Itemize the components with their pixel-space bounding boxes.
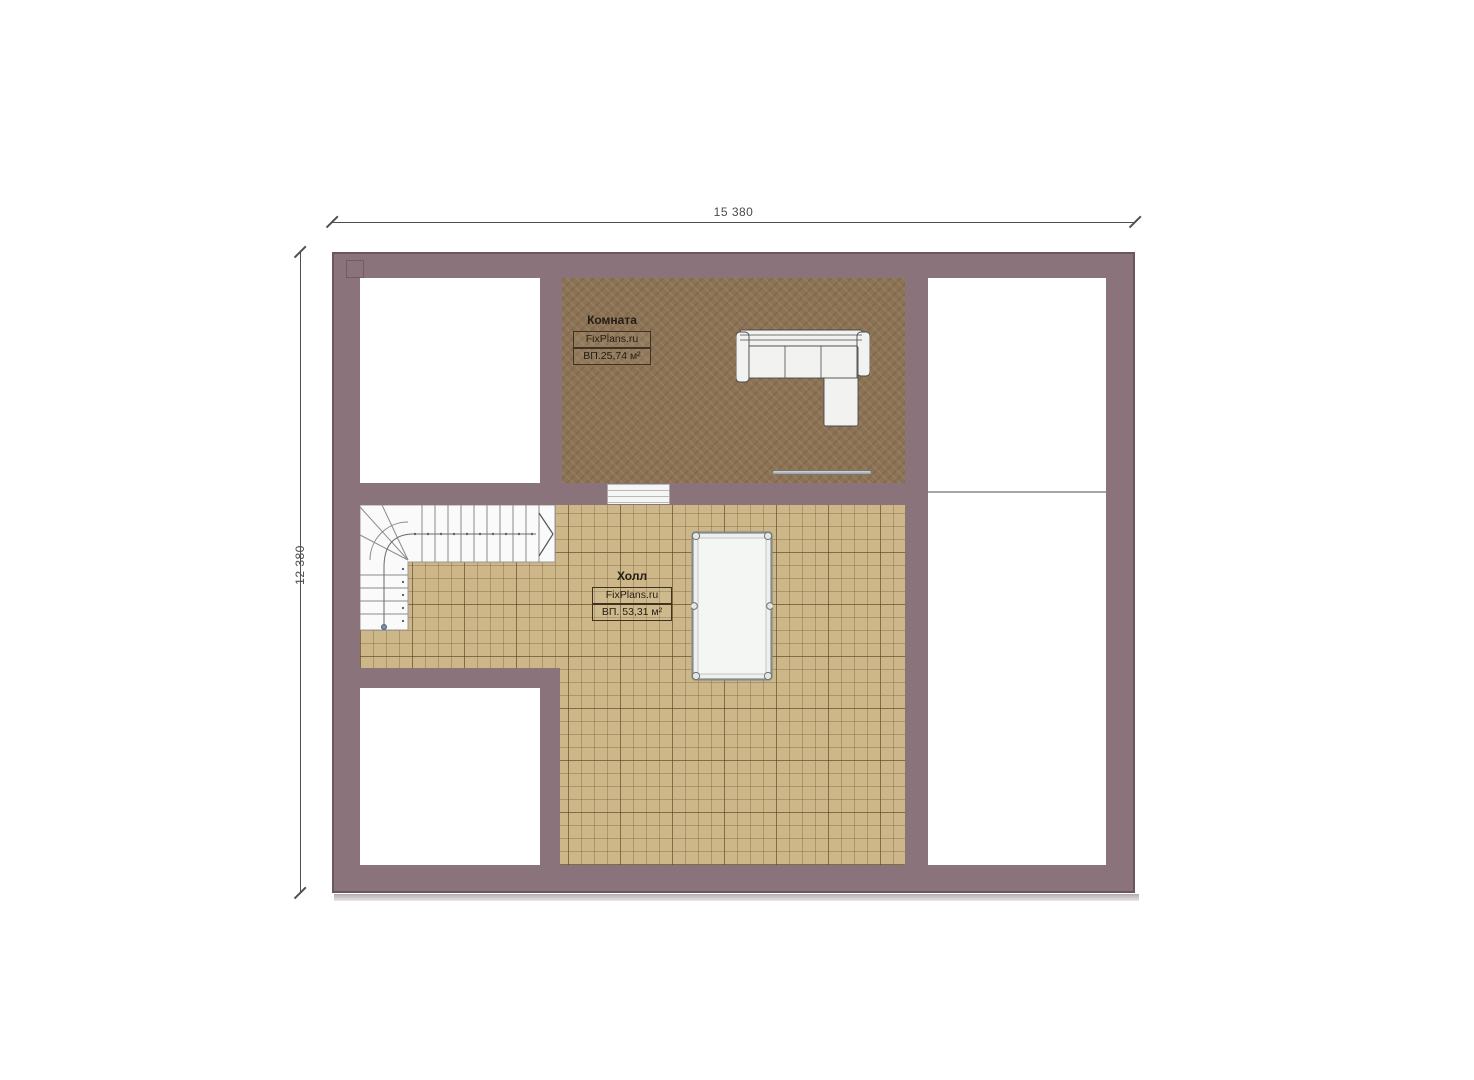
thin-wall-object (772, 470, 872, 475)
dimension-height-line (300, 252, 301, 893)
stair-walkline-start-dot (381, 624, 386, 629)
room-komnata-name: Комната (562, 313, 662, 327)
corner-sofa (736, 328, 870, 428)
room-bottom-left (360, 688, 540, 865)
wall-right-of-hall (905, 278, 928, 865)
wall-between-tl-room-and-komnata (540, 278, 562, 505)
hall-brand: FixPlans.ru (592, 587, 672, 604)
hall-area: ВП. 53,31 м² (592, 604, 672, 621)
dimension-width-label: 15 380 (332, 205, 1135, 219)
right-room-divider-line (928, 491, 1106, 493)
staircase (360, 505, 556, 631)
room-komnata-brand: FixPlans.ru (573, 331, 651, 348)
wall-bottom-left-room-right (540, 668, 560, 865)
corner-post-marker (346, 260, 364, 278)
wall-bottom-left-room-top (360, 668, 560, 688)
billiard-table (691, 531, 773, 681)
room-right (928, 278, 1106, 865)
floor-plan-page: 15 380 12 380 (0, 0, 1474, 1080)
room-komnata-area: ВП.25,74 м² (573, 348, 651, 365)
hall-name: Холл (582, 569, 682, 583)
room-top-left (360, 278, 540, 483)
dimension-width-line (332, 222, 1135, 223)
door-threshold (607, 484, 670, 504)
wall-drop-shadow (334, 894, 1139, 901)
